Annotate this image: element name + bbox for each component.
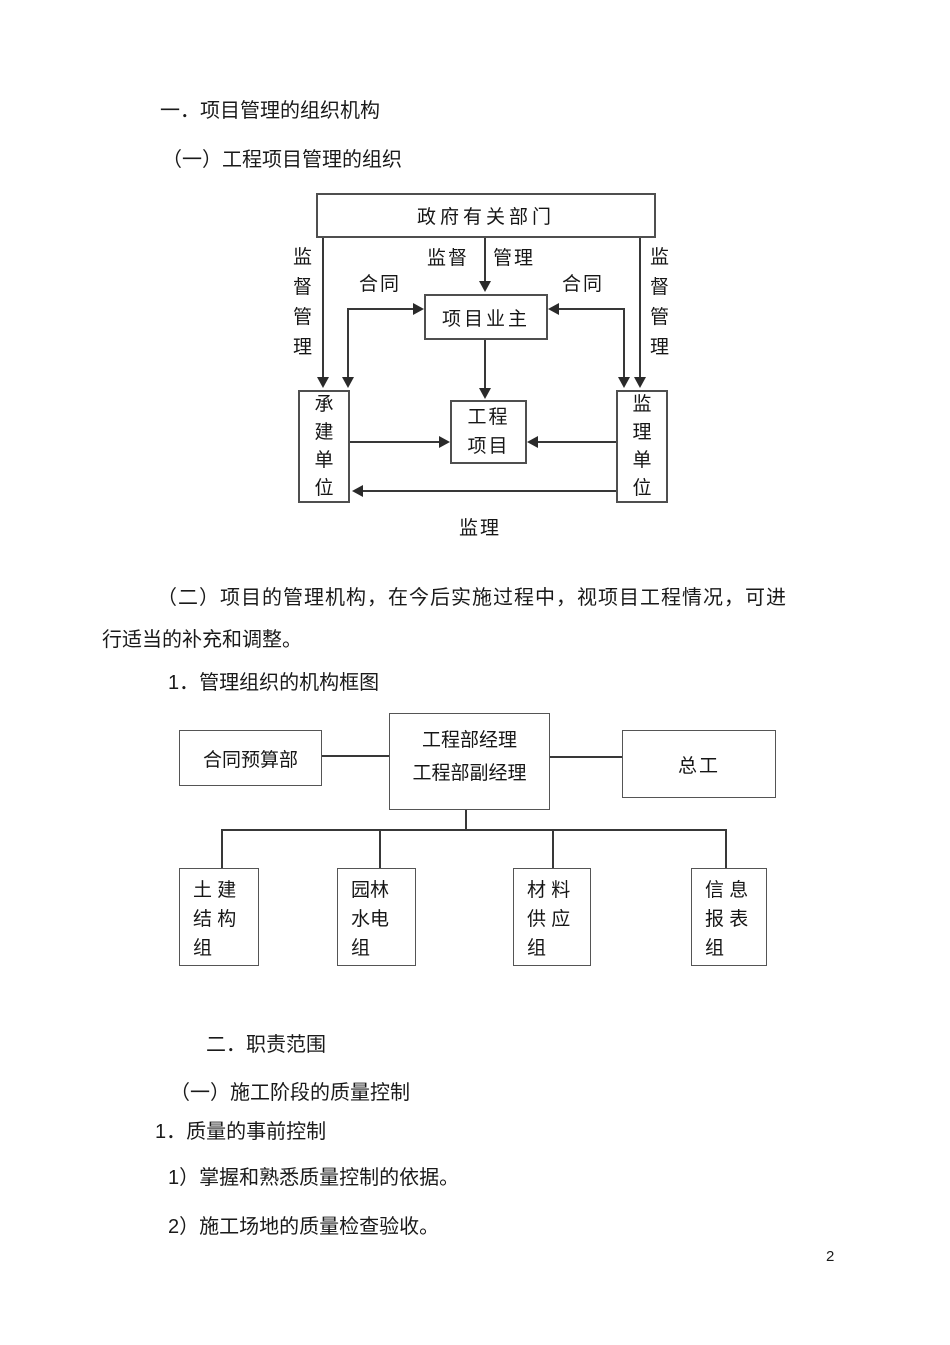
- line-gov-to-owner: [484, 238, 486, 282]
- supervision-unit-label: 监理单位: [632, 391, 653, 503]
- contractor-unit-box: 承建单位: [298, 390, 350, 503]
- line-contract-right-vertical: [623, 308, 625, 378]
- label-contract-left: 合同: [359, 274, 401, 296]
- line-supervisor-to-contractor: [362, 490, 616, 492]
- line-drop-group1: [221, 829, 223, 868]
- chart-heading: 1．管理组织的机构框图: [168, 671, 379, 695]
- line-budget-to-manager: [322, 755, 389, 757]
- arrowhead-gov-to-owner: [479, 281, 491, 292]
- list-item-1: 1）掌握和熟悉质量控制的依据。: [168, 1166, 459, 1190]
- arrowhead-owner-to-project: [479, 388, 491, 399]
- group-info-report-box: 信 息 报 表 组: [691, 868, 767, 966]
- line-owner-to-project: [484, 340, 486, 389]
- line-distribution: [221, 829, 727, 831]
- supervision-unit-box: 监理单位: [616, 390, 668, 503]
- arrowhead-supervisor-to-project: [527, 436, 538, 448]
- section2-item: 1．质量的事前控制: [155, 1120, 326, 1144]
- contract-budget-box: 合同预算部: [179, 730, 322, 786]
- arrowhead-contract-right-to-supervisor: [618, 377, 630, 388]
- group-landscape-utilities-box: 园林 水电 组: [337, 868, 416, 966]
- section2-title: 二．职责范围: [206, 1033, 326, 1057]
- label-supervise: 监督: [427, 248, 469, 270]
- label-manage: 管理: [493, 248, 535, 270]
- section2-subtitle: （一）施工阶段的质量控制: [170, 1081, 410, 1105]
- line-contractor-to-project: [350, 441, 440, 443]
- line-drop-group2: [379, 829, 381, 868]
- contractor-unit-label: 承建单位: [314, 391, 335, 503]
- line-drop-group3: [552, 829, 554, 868]
- label-supervision-bottom: 监理: [459, 518, 501, 540]
- gov-department-box: 政府有关部门: [316, 193, 656, 238]
- line-contract-right-horizontal: [558, 308, 624, 310]
- line-supervisor-to-project: [538, 441, 616, 443]
- engineering-project-box: 工程 项目: [450, 400, 527, 464]
- arrowhead-supervisor-to-contractor: [352, 485, 363, 497]
- project-owner-box: 项目业主: [424, 294, 548, 340]
- line-gov-to-contractor: [322, 238, 324, 378]
- line-contract-left-vertical: [347, 308, 349, 378]
- arrowhead-contract-left-to-owner: [413, 303, 424, 315]
- page-number: 2: [826, 1248, 834, 1265]
- arrowhead-gov-to-supervisor: [634, 377, 646, 388]
- paragraph-line1: （二）项目的管理机构，在今后实施过程中，视项目工程情况，可进: [157, 586, 787, 610]
- document-page: 一．项目管理的组织机构 （一）工程项目管理的组织 政府有关部门 监督管理 监督管…: [0, 0, 950, 1345]
- group-civil-structure-box: 土 建 结 构 组: [179, 868, 259, 966]
- paragraph-line2: 行适当的补充和调整。: [102, 628, 302, 652]
- label-supervise-manage-left: 监督管理: [291, 243, 314, 363]
- list-item-2: 2）施工场地的质量检查验收。: [168, 1215, 439, 1239]
- label-supervise-manage-right: 监督管理: [648, 243, 671, 363]
- dept-manager-box: 工程部经理 工程部副经理: [389, 713, 550, 810]
- group-material-supply-box: 材 料 供 应 组: [513, 868, 591, 966]
- section1-title: 一．项目管理的组织机构: [160, 99, 380, 123]
- line-gov-to-supervisor: [639, 238, 641, 378]
- line-drop-group4: [725, 829, 727, 868]
- arrowhead-gov-to-contractor: [317, 377, 329, 388]
- arrowhead-contractor-to-project: [439, 436, 450, 448]
- line-manager-stub: [465, 810, 467, 830]
- label-contract-right: 合同: [562, 274, 604, 296]
- chief-engineer-box: 总工: [622, 730, 776, 798]
- line-manager-to-chief: [550, 756, 622, 758]
- arrowhead-contract-left-to-contractor: [342, 377, 354, 388]
- line-contract-left-horizontal: [348, 308, 414, 310]
- section1-subtitle: （一）工程项目管理的组织: [162, 148, 402, 172]
- arrowhead-contract-right-to-owner: [548, 303, 559, 315]
